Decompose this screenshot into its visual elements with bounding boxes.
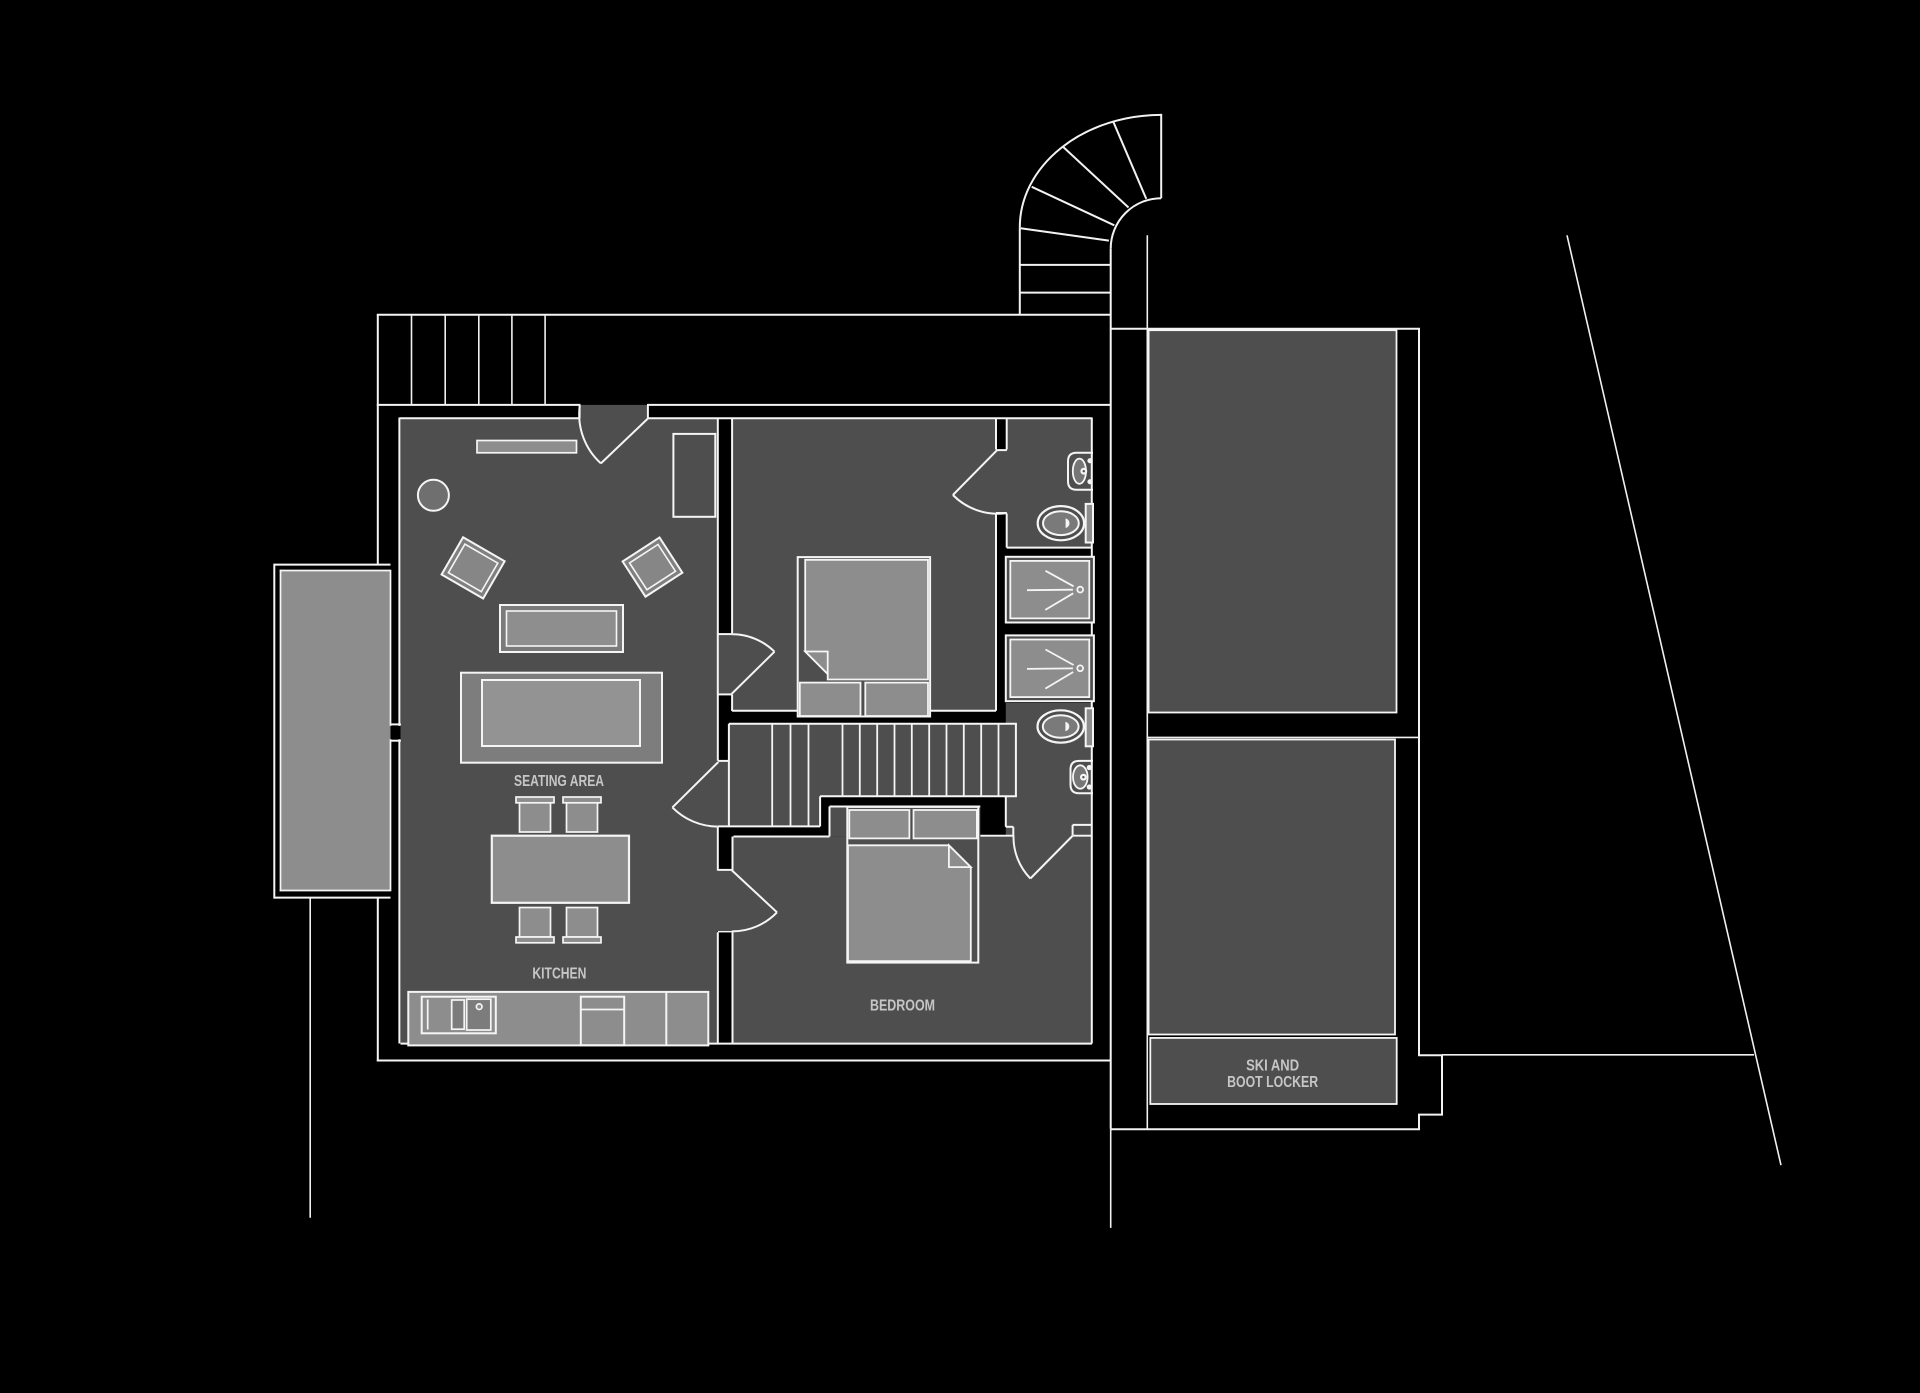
svg-text:KITCHEN: KITCHEN [532,966,586,983]
svg-text:BOOT LOCKER: BOOT LOCKER [1227,1074,1318,1091]
svg-text:BEDROOM: BEDROOM [870,997,935,1014]
svg-text:SEATING AREA: SEATING AREA [514,773,604,790]
svg-text:SKI AND: SKI AND [1246,1058,1299,1075]
